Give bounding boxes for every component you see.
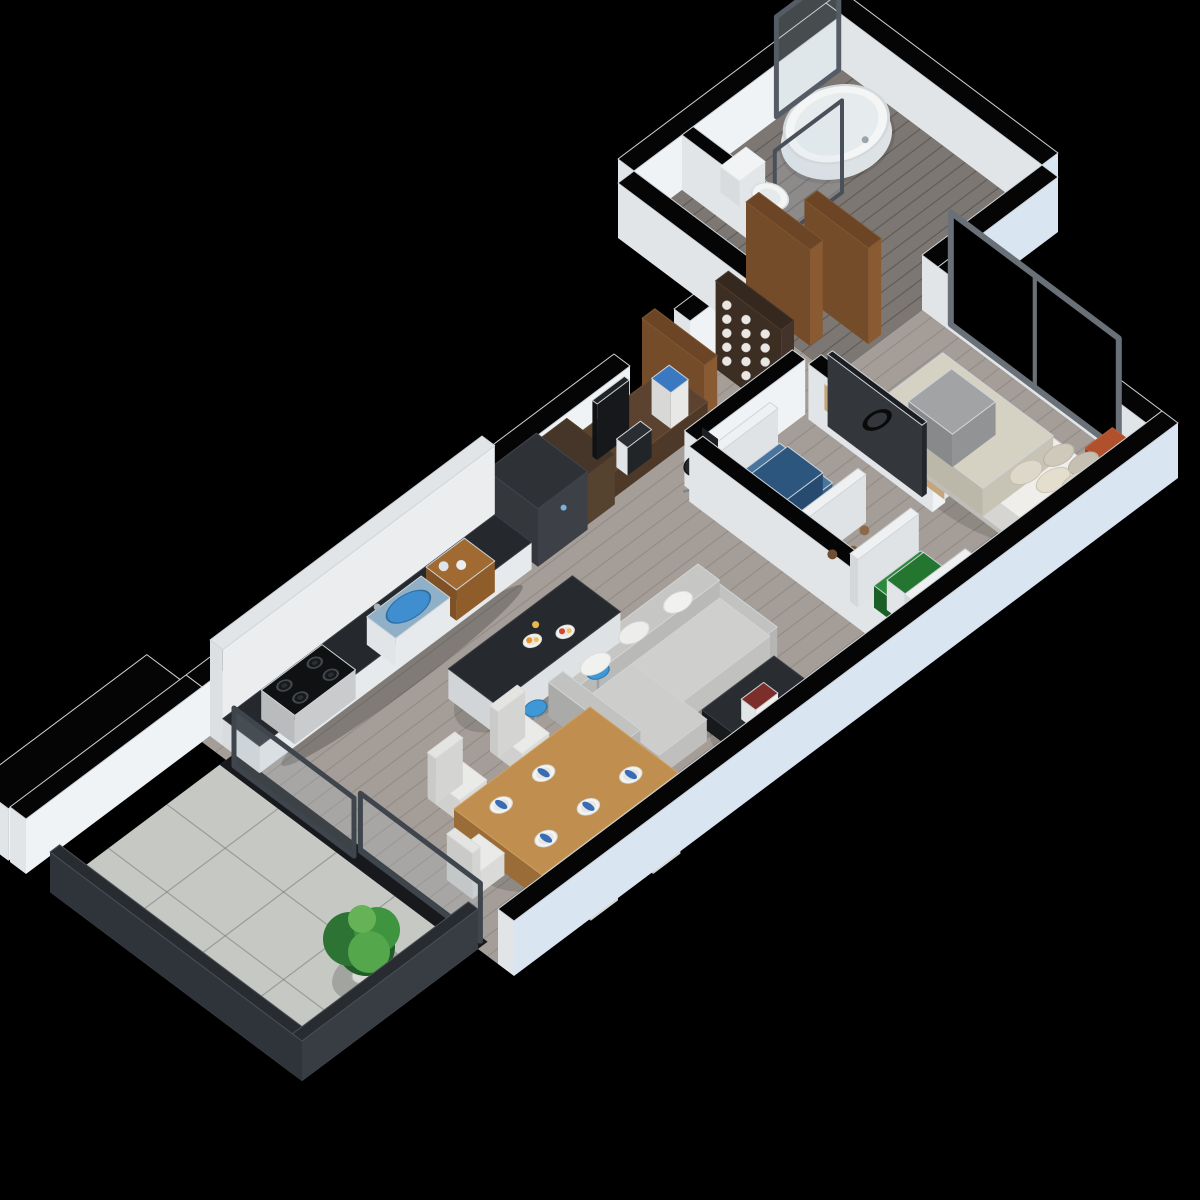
juice-glass bbox=[532, 621, 539, 628]
floorplan-3d-render bbox=[0, 0, 1200, 1200]
closet-shoe-1 bbox=[827, 549, 837, 559]
fridge-logo bbox=[561, 505, 567, 511]
dish-2 bbox=[456, 560, 466, 570]
closet-shoe-4 bbox=[859, 525, 869, 535]
kitchen-faucet bbox=[374, 604, 381, 611]
dish-1 bbox=[439, 561, 449, 571]
floorplan-scene-svg bbox=[0, 0, 1200, 1200]
